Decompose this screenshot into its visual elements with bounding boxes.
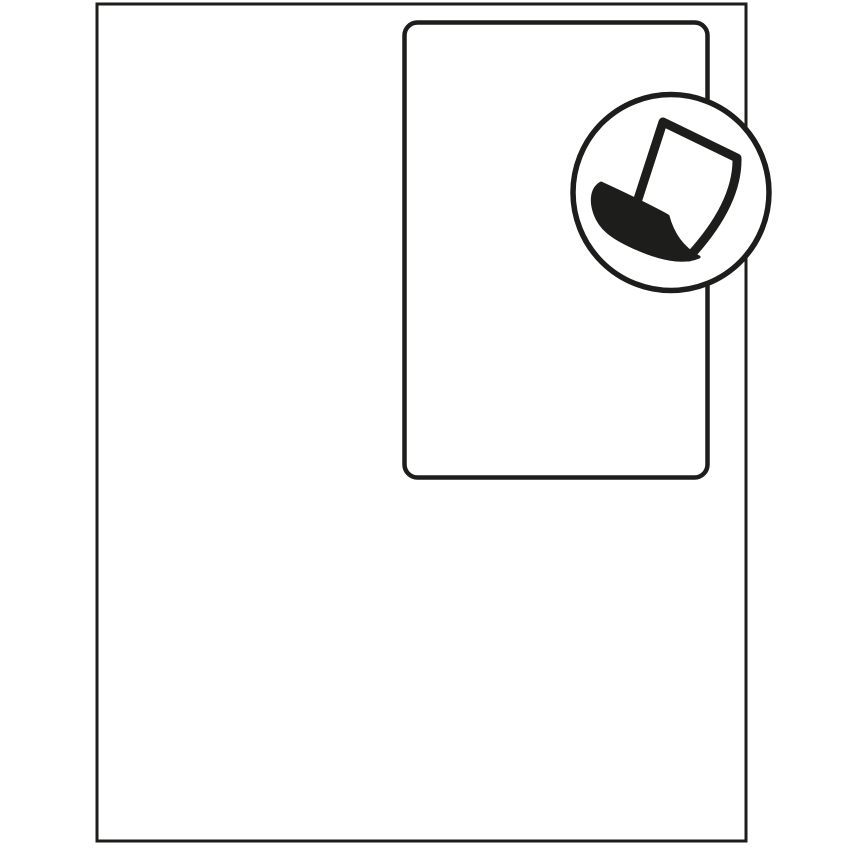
template-drawing [0, 0, 850, 850]
label-template-illustration [0, 0, 850, 850]
peel-badge [573, 95, 769, 291]
